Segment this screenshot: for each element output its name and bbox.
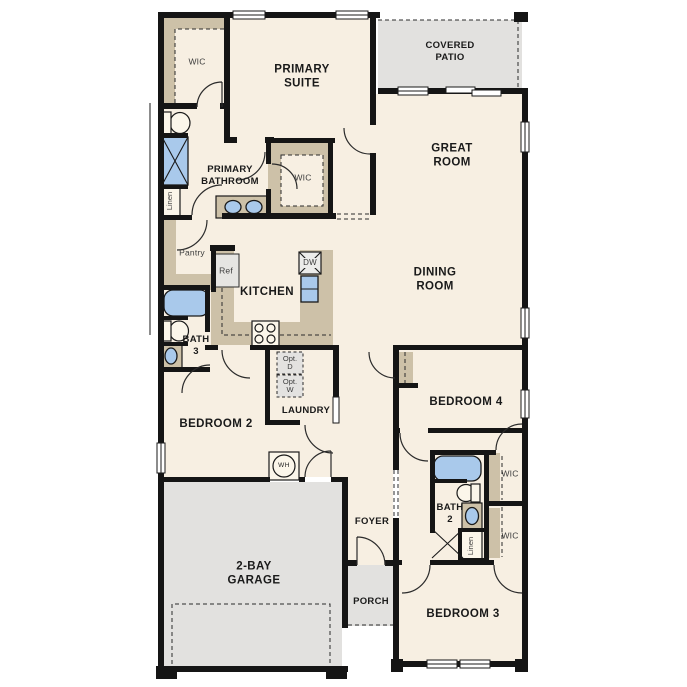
room-label-laundry: LAUNDRY (282, 405, 330, 417)
room-label-covered-patio: COVERED PATIO (425, 40, 474, 64)
floor-plan: WIC PRIMARY SUITE COVERED PATIO GREAT RO… (0, 0, 687, 687)
optional-washer-label: Opt. W (283, 378, 297, 395)
room-label-bath-2: BATH 2 (437, 502, 464, 526)
refrigerator-label: Ref (219, 266, 233, 277)
dishwasher-label: DW (302, 258, 318, 268)
room-label-pantry: Pantry (179, 248, 205, 259)
stove-icon (252, 321, 279, 346)
room-label-garage: 2-BAY GARAGE (228, 560, 281, 589)
optional-dryer-label: Opt. D (283, 355, 297, 372)
room-label-bedroom-4: BEDROOM 4 (429, 395, 502, 409)
room-label-bath-3: BATH 3 (183, 334, 210, 358)
sliding-door (472, 90, 501, 96)
room-label-wic-primary-2: WIC (294, 173, 311, 184)
sink-icon (462, 503, 482, 530)
room-label-linen-2: Linen (467, 537, 475, 555)
sliding-door (446, 87, 475, 93)
water-heater-label: WH (278, 462, 290, 470)
room-label-porch: PORCH (353, 596, 389, 608)
room-label-wic-bedroom-4: WIC (501, 469, 518, 480)
room-label-wic-bedroom-3: WIC (501, 531, 518, 542)
bathtub-icon (164, 290, 209, 316)
bathtub-icon (434, 456, 481, 481)
toilet-icon (457, 484, 480, 502)
room-label-primary-suite: PRIMARY SUITE (274, 63, 329, 92)
sink-icon (162, 344, 182, 369)
room-label-foyer: FOYER (355, 516, 389, 528)
kitchen-sink-icon (301, 276, 318, 302)
room-label-bedroom-3: BEDROOM 3 (426, 607, 499, 621)
room-label-kitchen: KITCHEN (240, 285, 294, 299)
room-label-primary-bathroom: PRIMARY BATHROOM (201, 164, 259, 188)
room-label-bedroom-2: BEDROOM 2 (179, 417, 252, 431)
room-label-dining-room: DINING ROOM (414, 266, 457, 295)
door-leaf (333, 397, 339, 423)
floor-plan-drawing (0, 0, 687, 687)
room-label-wic-primary-1: WIC (188, 57, 205, 68)
room-label-great-room: GREAT ROOM (431, 142, 472, 171)
toilet-icon (162, 112, 190, 134)
room-label-linen-1: Linen (166, 192, 174, 210)
